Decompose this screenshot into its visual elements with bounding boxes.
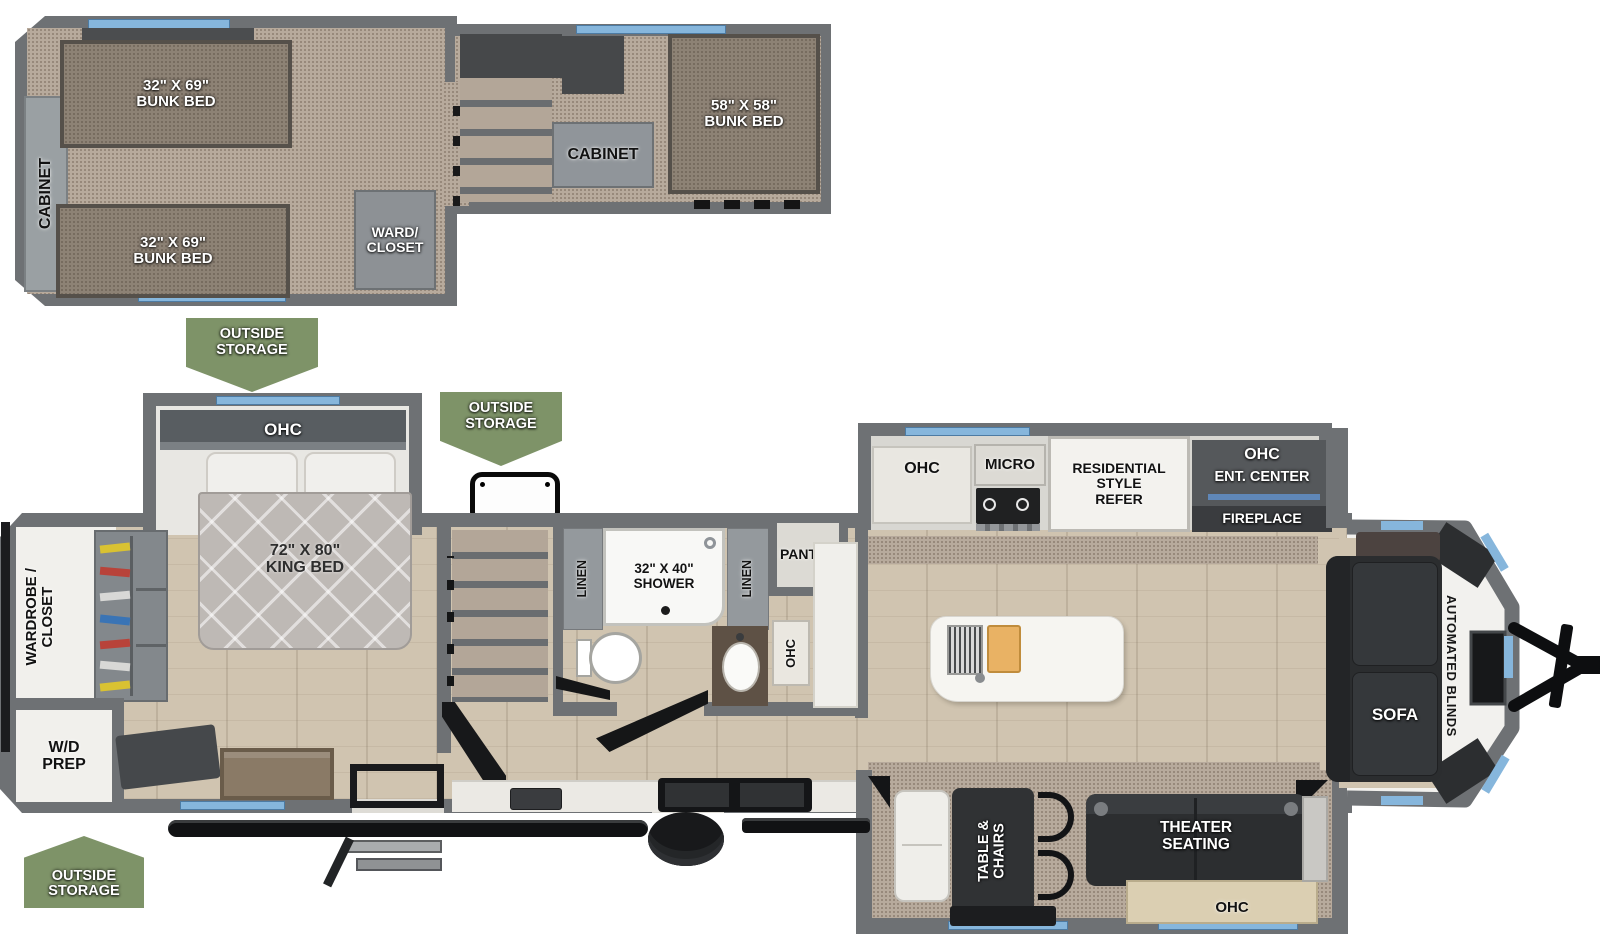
wd-prep-room: W/D PREP: [16, 710, 112, 802]
ward-closet: WARD/ CLOSET: [354, 190, 436, 290]
loft-overhang: [82, 28, 254, 40]
sink-bowl-left: [665, 783, 729, 807]
shower: 32" X 40" SHOWER: [603, 528, 725, 626]
ward-closet-label: WARD/ CLOSET: [367, 225, 424, 255]
outside-storage-badge-3: OUTSIDE STORAGE: [24, 836, 144, 908]
bath-ohc-label: OHC: [784, 639, 798, 668]
floorplan: CABINET 32" X 69" BUNK BED 32" X 69" BUN…: [0, 0, 1600, 945]
king-slide-ohc: OHC: [160, 410, 406, 450]
hanger-6: [100, 661, 131, 672]
cap-window-1: [1381, 521, 1423, 530]
outside-storage-badge-1-label: OUTSIDE STORAGE: [216, 327, 287, 358]
theater-end-table: [1302, 796, 1328, 882]
burner-2: [1016, 498, 1029, 511]
bunk-bed-right: 58" X 58" BUNK BED: [668, 34, 820, 194]
shower-head-icon: [704, 537, 716, 549]
theater-cupholder-left: [1094, 802, 1108, 816]
theater-cupholder-right: [1284, 802, 1298, 816]
automated-blinds-label-box: AUTOMATED BLINDS: [1438, 590, 1464, 742]
dinette-bench-white: [894, 790, 950, 902]
step-1: [346, 840, 442, 853]
king-bed: 72" X 80" KING BED: [198, 492, 412, 650]
sofa: SOFA: [1326, 556, 1442, 782]
dinette-table-label: TABLE & CHAIRS: [977, 820, 1008, 882]
linen-cabinet-left: LINEN: [563, 528, 603, 630]
bunk-bed-left-top: 32" X 69" BUNK BED: [60, 40, 292, 148]
bunk-bed-left-bottom-label: 32" X 69" BUNK BED: [133, 235, 212, 267]
microwave: MICRO: [974, 444, 1046, 486]
outside-storage-badge-1: OUTSIDE STORAGE: [186, 318, 318, 392]
sofa-label: SOFA: [1352, 706, 1438, 724]
cap-window-3: [1504, 636, 1513, 678]
bunk-bed-right-label: 58" X 58" BUNK BED: [704, 98, 783, 130]
entry-step-round: [648, 812, 724, 866]
bath-sink: [722, 642, 760, 692]
shower-label: 32" X 40" SHOWER: [634, 562, 695, 591]
sink-bowl-right: [740, 783, 804, 807]
bath-sink-cabinet: [712, 626, 768, 706]
loft-stairs: [460, 78, 552, 202]
bunk-bed-left-bottom: 32" X 69" BUNK BED: [56, 204, 290, 298]
tv-dot-right: [545, 482, 550, 487]
bedroom-storage-chest: [220, 748, 334, 800]
kitchen-island: [930, 616, 1124, 702]
wd-wall-horizontal: [16, 698, 124, 710]
loft-window-top-right: [576, 25, 726, 34]
cap-window-5: [1381, 796, 1423, 805]
kitchen-ohc-counter: OHC: [872, 446, 972, 524]
front-tv-panel: [1471, 632, 1505, 704]
dinette-table: TABLE & CHAIRS: [952, 788, 1034, 914]
theater-seating: THEATER SEATING: [1086, 794, 1306, 886]
sofa-back: [1326, 556, 1350, 782]
king-slide-ohc-label: OHC: [264, 421, 302, 439]
kitchen-slide-window: [905, 427, 1030, 436]
bath-ohc: OHC: [772, 620, 810, 686]
refrigerator-label: RESIDENTIAL STYLE REFER: [1072, 461, 1165, 506]
burner-1: [983, 498, 996, 511]
hanger-1: [100, 542, 131, 553]
refrigerator: RESIDENTIAL STYLE REFER: [1048, 436, 1190, 532]
bottom-window-bedroom: [180, 801, 285, 810]
toilet: [576, 632, 642, 684]
hanger-5: [100, 639, 131, 650]
kitchen-runner-carpet: [868, 536, 1318, 564]
outside-storage-badge-2-label: OUTSIDE STORAGE: [465, 401, 536, 432]
loft-landing-dark: [460, 34, 562, 78]
microwave-label: MICRO: [985, 457, 1035, 473]
hall-counter: [813, 542, 858, 708]
bath-wall-bottom-left: [553, 702, 617, 716]
theater-seating-label: THEATER SEATING: [1086, 820, 1306, 853]
hanger-4: [100, 614, 131, 625]
automated-blinds-label: AUTOMATED BLINDS: [1444, 595, 1458, 737]
island-faucet: [975, 673, 985, 683]
rear-wall-window: [1, 522, 10, 752]
bath-faucet: [736, 633, 744, 641]
ent-ohc-label: OHC: [1192, 446, 1332, 463]
main-stairs-rail: [447, 556, 454, 686]
loft-landing-dark-2: [562, 36, 624, 94]
counter-tray: [510, 788, 562, 810]
closet-rod: [130, 536, 133, 696]
outside-storage-badge-3-label: OUTSIDE STORAGE: [48, 869, 119, 900]
step-rail: [323, 837, 354, 888]
dinette-table-base: [950, 906, 1056, 926]
fireplace: FIREPLACE: [1192, 506, 1332, 532]
hanger-7: [100, 680, 131, 691]
double-sink: [658, 778, 812, 812]
main-stairs: [452, 530, 548, 702]
linen-cabinet-right: LINEN: [727, 528, 769, 630]
fireplace-label: FIREPLACE: [1222, 511, 1301, 526]
toilet-bowl: [589, 632, 642, 684]
kitchen-ohc-label: OHC: [874, 460, 970, 477]
bedroom-bench-frame: [350, 764, 444, 808]
closet-shelf-1: [136, 588, 166, 591]
king-bed-label: 72" X 80" KING BED: [200, 542, 410, 577]
linen-left-label: LINEN: [576, 560, 590, 598]
tv-dot-left: [480, 482, 485, 487]
island-cutting-board: [987, 625, 1021, 673]
fold-out-steps: [334, 834, 450, 884]
stove-cooktop: [976, 488, 1040, 524]
stove-knobs: [976, 524, 1040, 531]
closet-hanger-unit: [94, 530, 168, 702]
hanger-2: [100, 567, 131, 578]
closet-shelf-2: [136, 644, 166, 647]
wardrobe-label-box: WARDROBE / CLOSET: [18, 532, 62, 702]
hitch-tongue: [1571, 656, 1600, 674]
entertainment-center: OHC ENT. CENTER: [1192, 440, 1332, 506]
island-sink: [947, 625, 983, 675]
king-slide-window: [216, 396, 340, 405]
loft-cabinet-mid-label: CABINET: [567, 146, 638, 163]
bench-seam: [902, 844, 942, 846]
hitch-jack-post: [1549, 624, 1574, 709]
wardrobe-label: WARDROBE / CLOSET: [24, 568, 56, 666]
ent-shelf-window: [1208, 494, 1320, 500]
bunk-bed-left-top-label: 32" X 69" BUNK BED: [136, 78, 215, 110]
ent-center-label: ENT. CENTER: [1192, 470, 1332, 486]
loft-cabinet-side-label: CABINET: [37, 158, 54, 229]
awning-rail-short: [742, 818, 870, 833]
linen-right-label: LINEN: [741, 560, 755, 598]
shower-drain: [661, 606, 670, 615]
theater-ohc-label: OHC: [1196, 900, 1268, 916]
loft-cabinet-mid: CABINET: [552, 122, 654, 188]
hanger-3: [100, 591, 131, 602]
outside-storage-badge-2: OUTSIDE STORAGE: [440, 392, 562, 466]
step-2: [356, 858, 442, 871]
sofa-cushion-top: [1352, 562, 1438, 666]
loft-stairs-rail-left: [453, 88, 460, 206]
loft-window-ticks: [694, 200, 804, 209]
wd-prep-label: W/D PREP: [42, 739, 86, 774]
